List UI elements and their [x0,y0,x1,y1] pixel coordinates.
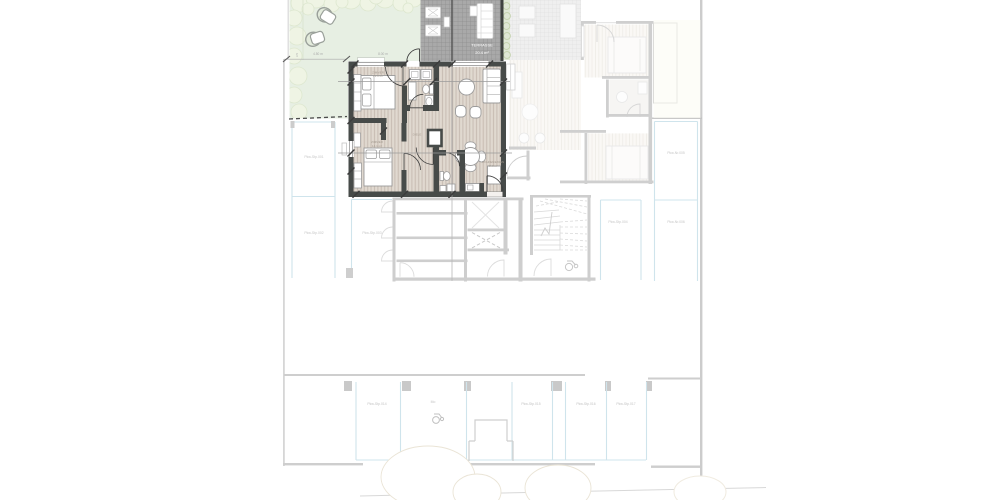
svg-text:WOHNEN/ESSEN: WOHNEN/ESSEN [482,160,504,164]
svg-text:14.1 m²: 14.1 m² [372,144,382,148]
svg-text:Pkw-Stp.002: Pkw-Stp.002 [304,231,323,235]
svg-text:8.00 m: 8.00 m [378,52,388,56]
svg-text:4.50 m: 4.50 m [313,52,323,56]
svg-text:TERRASSE: TERRASSE [471,43,493,48]
svg-text:13.0 m²: 13.0 m² [373,74,383,78]
svg-text:Pkw-Stp.001: Pkw-Stp.001 [304,155,323,159]
svg-text:DIELE: DIELE [413,132,422,136]
svg-text:34.9 m²: 34.9 m² [488,164,497,168]
svg-text:20.4 m²: 20.4 m² [475,50,489,55]
svg-text:Pkw-Nr.005: Pkw-Nr.005 [667,151,685,155]
svg-text:Mo: Mo [431,400,436,404]
svg-text:3.5: 3.5 [295,53,299,58]
svg-text:Pkw-Stp.017: Pkw-Stp.017 [616,402,635,406]
svg-text:Pkw-Stp.003: Pkw-Stp.003 [362,231,381,235]
svg-text:Pkw-Nr.006: Pkw-Nr.006 [667,220,685,224]
svg-text:Pkw-Stp.004: Pkw-Stp.004 [608,220,627,224]
svg-text:Pkw-Stp.015: Pkw-Stp.015 [521,402,540,406]
svg-text:Pkw-Stp.016: Pkw-Stp.016 [576,402,595,406]
svg-text:Pkw-Stp.014: Pkw-Stp.014 [367,402,386,406]
